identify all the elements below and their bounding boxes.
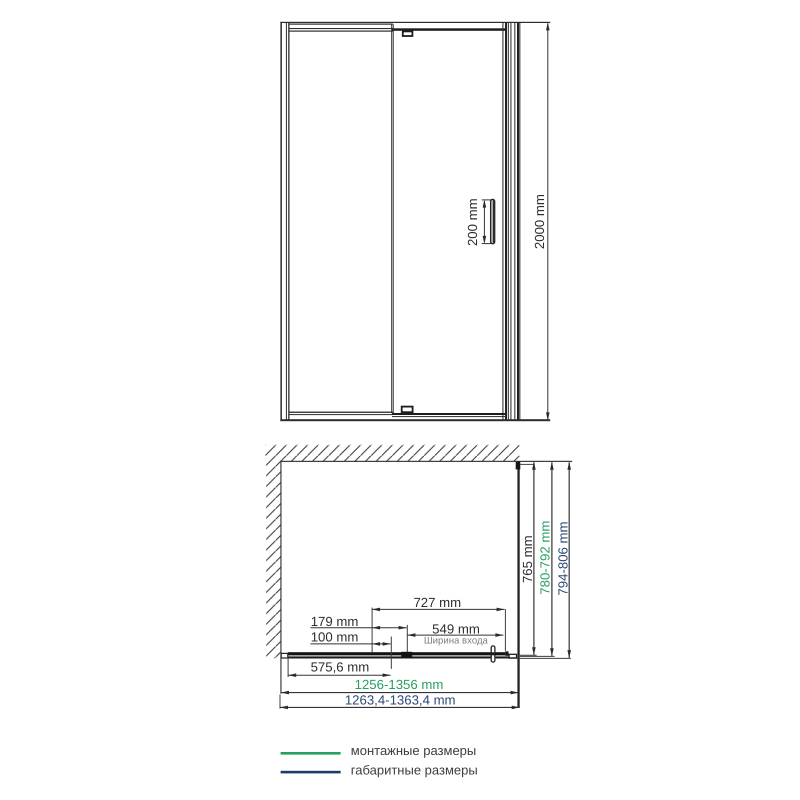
svg-text:765 mm: 765 mm xyxy=(520,535,535,583)
svg-text:575,6 mm: 575,6 mm xyxy=(311,659,370,674)
svg-text:549 mm: 549 mm xyxy=(432,622,480,637)
svg-text:габаритные размеры: габаритные размеры xyxy=(351,763,478,778)
svg-text:Ширина входа: Ширина входа xyxy=(424,635,489,646)
svg-text:794-806 mm: 794-806 mm xyxy=(555,521,570,595)
svg-text:179 mm: 179 mm xyxy=(311,614,359,629)
svg-text:2000 mm: 2000 mm xyxy=(532,194,547,249)
svg-text:1256-1356 mm: 1256-1356 mm xyxy=(355,677,444,692)
svg-text:1263,4-1363,4 mm: 1263,4-1363,4 mm xyxy=(345,693,456,708)
svg-text:727 mm: 727 mm xyxy=(413,595,461,610)
svg-text:монтажные размеры: монтажные размеры xyxy=(351,743,476,758)
svg-text:100 mm: 100 mm xyxy=(311,630,359,645)
svg-text:200 mm: 200 mm xyxy=(465,198,480,246)
svg-text:780-792 mm: 780-792 mm xyxy=(537,521,552,595)
